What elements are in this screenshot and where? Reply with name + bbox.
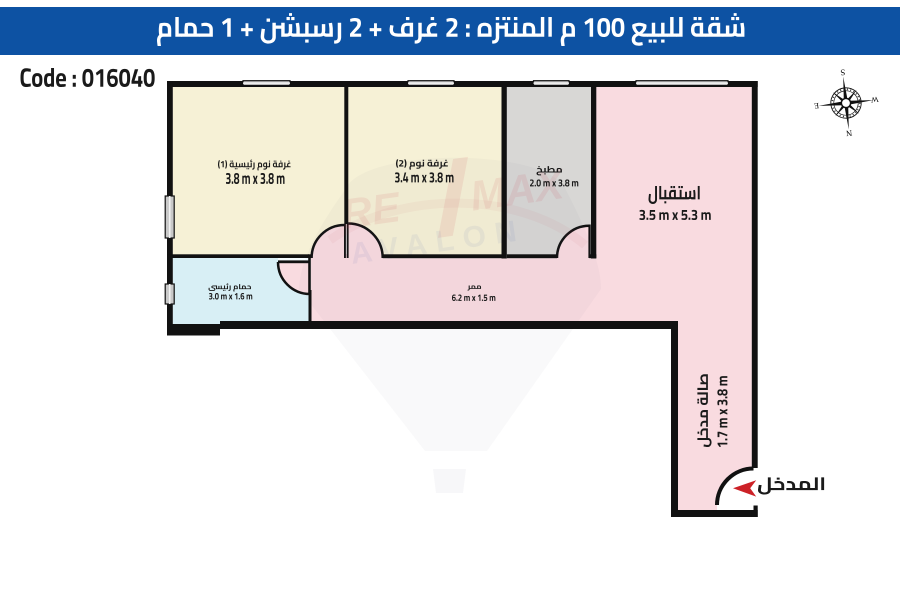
svg-text:RE: RE	[338, 183, 404, 238]
svg-text:N: N	[846, 128, 853, 139]
svg-text:W: W	[870, 95, 879, 105]
